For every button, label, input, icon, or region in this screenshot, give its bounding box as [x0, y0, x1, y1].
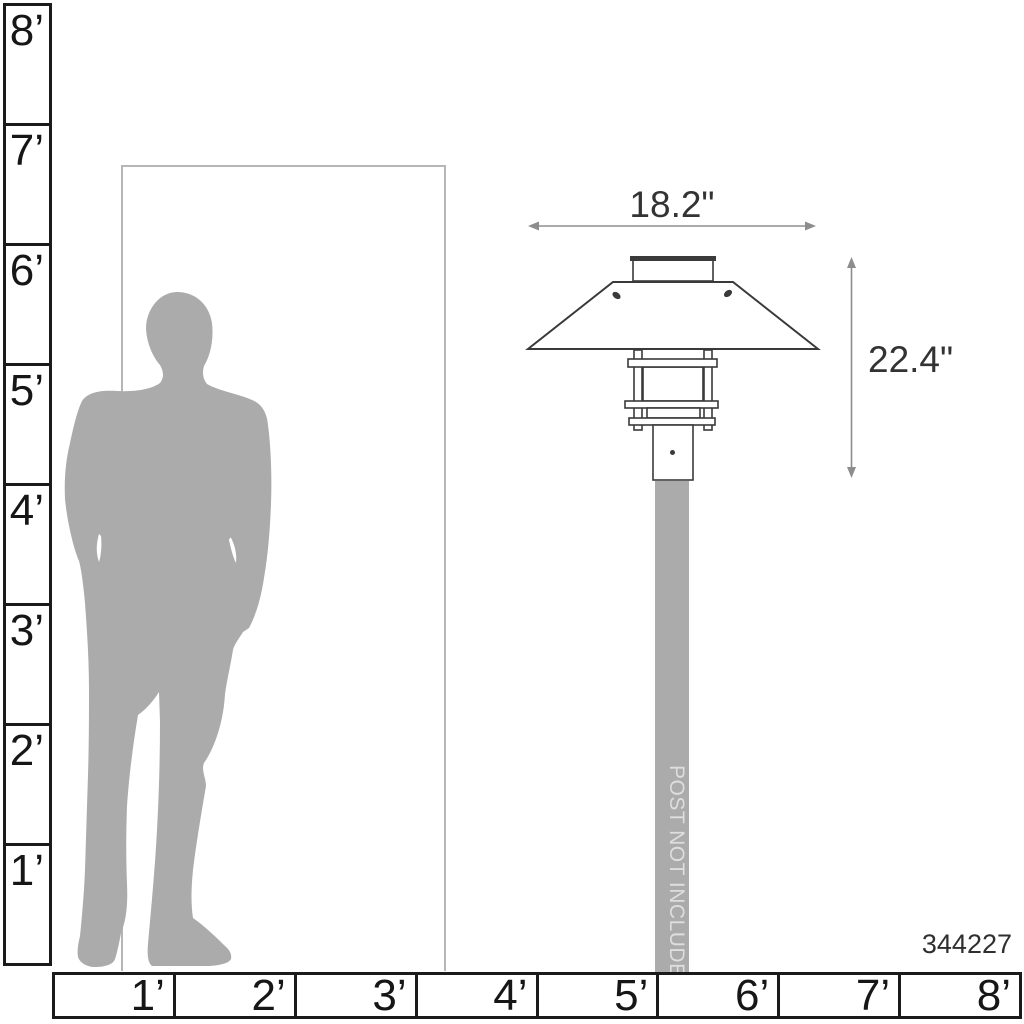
vruler-cell-4ft: 4’ — [6, 483, 49, 603]
cage-band-top — [628, 359, 717, 367]
vruler-cell-2ft: 2’ — [6, 723, 49, 843]
vertical-feet-ruler: 8’ 7’ 6’ 5’ 4’ 3’ 2’ 1’ — [3, 3, 52, 966]
person-silhouette — [65, 292, 272, 967]
hruler-cell-8ft: 8’ — [898, 975, 1019, 1016]
lamp-fixture-drawing — [528, 256, 818, 480]
hruler-cell-6ft: 6’ — [656, 975, 777, 1016]
vruler-cell-3ft: 3’ — [6, 603, 49, 723]
hruler-cell-4ft: 4’ — [415, 975, 536, 1016]
arrow-head-right — [805, 222, 816, 231]
arrow-head-left — [528, 222, 539, 231]
hruler-cell-2ft: 2’ — [173, 975, 294, 1016]
person-body-shape — [65, 292, 272, 967]
arrow-head-top — [847, 257, 856, 268]
product-id: 344227 — [860, 929, 1012, 960]
diagram-artwork — [0, 0, 1024, 1024]
height-dimension-arrow — [847, 257, 856, 478]
vruler-cell-5ft: 5’ — [6, 363, 49, 483]
lamp-glass — [643, 367, 703, 401]
vruler-cell-8ft: 8’ — [6, 6, 49, 123]
width-dimension-label: 18.2" — [572, 184, 772, 226]
arrow-head-bottom — [847, 467, 856, 478]
socket-screw-dot — [670, 450, 675, 455]
post-not-included-note: POST NOT INCLUDED — [658, 765, 688, 977]
cage-collar — [647, 408, 700, 418]
hruler-cell-3ft: 3’ — [294, 975, 415, 1016]
vruler-cell-1ft: 1’ — [6, 843, 49, 963]
hruler-cell-7ft: 7’ — [777, 975, 898, 1016]
cage-band-bottom — [629, 418, 715, 425]
lamp-shade — [528, 282, 818, 349]
horizontal-feet-ruler: 1’ 2’ 3’ 4’ 5’ 6’ 7’ 8’ — [52, 972, 1022, 1019]
hruler-cell-1ft: 1’ — [55, 975, 173, 1016]
vruler-cell-7ft: 7’ — [6, 123, 49, 243]
vruler-cell-6ft: 6’ — [6, 243, 49, 363]
lamp-cap — [633, 259, 713, 281]
lamp-cap-top-bar — [630, 256, 716, 261]
dimension-diagram: 18.2" 22.4" POST NOT INCLUDED 344227 8’ … — [0, 0, 1024, 1024]
height-dimension-label: 22.4" — [868, 339, 953, 381]
hruler-cell-5ft: 5’ — [536, 975, 657, 1016]
cage-band-middle — [625, 401, 718, 408]
